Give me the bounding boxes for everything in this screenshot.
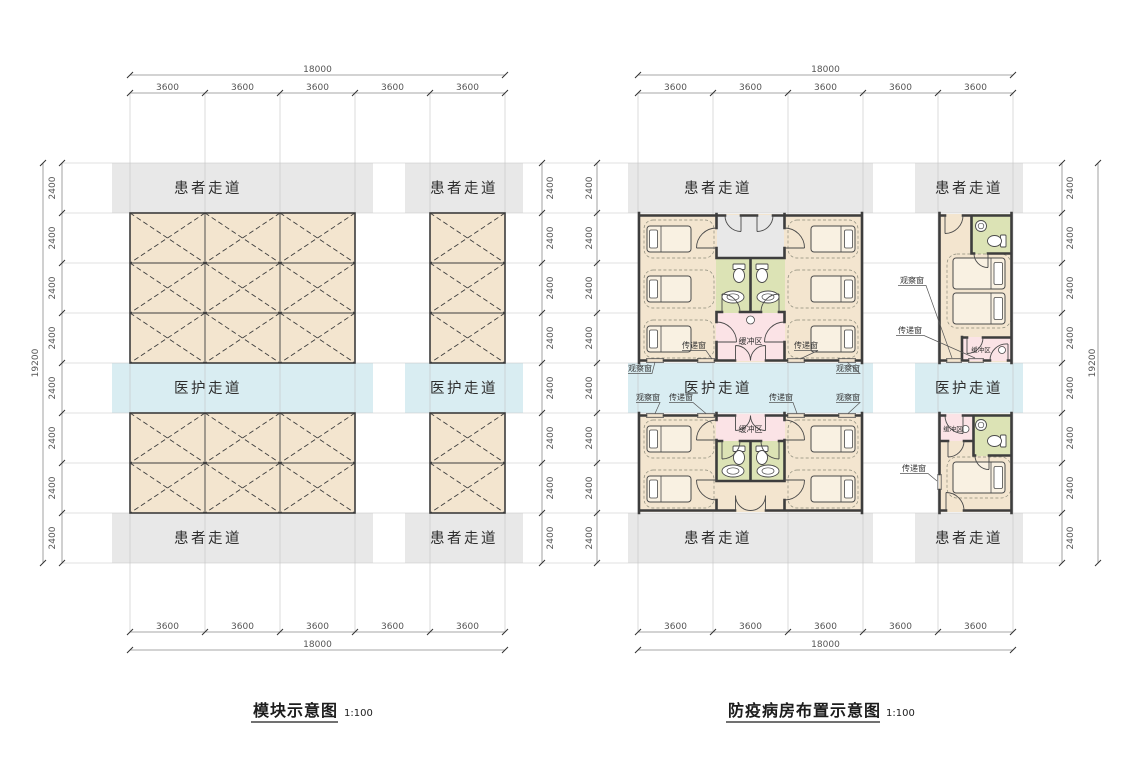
corridor-label: 患者走道 [684, 180, 752, 197]
corridor-label: 患者走道 [684, 530, 752, 547]
dim-label: 2400 [585, 226, 595, 249]
left-plan-module-blocks [130, 213, 505, 513]
dim-label: 2400 [48, 476, 58, 499]
dim-label: 3600 [306, 622, 329, 632]
corridor-label: 患者走道 [935, 180, 1003, 197]
corridor-label: 患者走道 [174, 530, 242, 547]
dim-label: 2400 [1066, 476, 1076, 499]
buffer-zone-label: 缓冲区 [739, 424, 763, 434]
patient-corridor-band [112, 513, 373, 563]
observation-window-label: 观察窗 [836, 363, 860, 373]
dim-label: 2400 [585, 476, 595, 499]
right-plan-title: 防疫病房布置示意图 [728, 701, 881, 720]
entry-vestibule [717, 215, 784, 258]
transfer-window-label: 传递窗 [902, 463, 926, 473]
dim-label: 18000 [811, 65, 840, 75]
corridor-label: 医护走道 [684, 380, 752, 397]
dim-label: 3600 [156, 83, 179, 93]
dim-label: 3600 [231, 622, 254, 632]
dim-label: 3600 [664, 83, 687, 93]
dim-label: 2400 [1066, 226, 1076, 249]
dim-label: 3600 [964, 83, 987, 93]
dim-label: 2400 [546, 326, 556, 349]
corridor-label: 患者走道 [430, 530, 498, 547]
dim-label: 2400 [546, 526, 556, 549]
dim-label: 3600 [156, 622, 179, 632]
transfer-window-label: 传递窗 [669, 392, 693, 402]
dim-label: 3600 [664, 622, 687, 632]
transfer-window-label: 传递窗 [898, 325, 922, 335]
dim-label: 2400 [48, 326, 58, 349]
dim-label: 2400 [546, 426, 556, 449]
dim-label: 2400 [585, 526, 595, 549]
dim-label: 2400 [546, 376, 556, 399]
dim-label: 3600 [889, 83, 912, 93]
corridor-label: 医护走道 [430, 380, 498, 397]
dim-label: 2400 [546, 226, 556, 249]
corridor-label: 医护走道 [935, 380, 1003, 397]
dim-label: 19200 [1088, 348, 1098, 377]
dim-label: 2400 [585, 426, 595, 449]
dim-label: 2400 [48, 526, 58, 549]
observation-window-label: 观察窗 [836, 392, 860, 402]
dim-label: 3600 [889, 622, 912, 632]
floor-plan-drawing: 患者走道 患者走道 医护走道 医护走道 患者走道 患者走道 患者走道 患者走道 … [0, 0, 1144, 775]
dim-label: 2400 [546, 176, 556, 199]
buffer-zone-label: 缓冲区 [739, 336, 763, 346]
dim-label: 3600 [739, 83, 762, 93]
transfer-window-label: 传递窗 [682, 340, 706, 350]
observation-window-label: 观察窗 [900, 275, 924, 285]
dim-label: 2400 [48, 226, 58, 249]
dim-label: 2400 [1066, 526, 1076, 549]
corridor-label: 患者走道 [935, 530, 1003, 547]
dim-label: 3600 [739, 622, 762, 632]
dim-label: 2400 [1066, 176, 1076, 199]
dim-label: 3600 [814, 83, 837, 93]
dim-label: 2400 [585, 176, 595, 199]
dim-label: 2400 [48, 176, 58, 199]
corridor-label: 医护走道 [174, 380, 242, 397]
transfer-window-label: 传递窗 [794, 340, 818, 350]
dim-label: 3600 [231, 83, 254, 93]
staff-corridor-band [112, 363, 373, 413]
left-plan-title: 模块示意图 [253, 701, 338, 720]
observation-window-label: 观察窗 [636, 392, 660, 402]
buffer-zone-label: 缓冲区 [971, 345, 991, 354]
dim-label: 18000 [303, 65, 332, 75]
dim-label: 2400 [1066, 326, 1076, 349]
dim-label: 2400 [585, 376, 595, 399]
dim-label: 2400 [48, 426, 58, 449]
drawing-titles: 模块示意图 1:100 防疫病房布置示意图 1:100 [251, 701, 915, 722]
dim-label: 18000 [811, 640, 840, 650]
dim-label: 3600 [964, 622, 987, 632]
dim-label: 2400 [48, 276, 58, 299]
dim-label: 2400 [48, 376, 58, 399]
left-plan-scale: 1:100 [344, 708, 373, 719]
dim-label: 2400 [1066, 276, 1076, 299]
dim-label: 2400 [585, 326, 595, 349]
dim-label: 2400 [1066, 376, 1076, 399]
dim-label: 19200 [31, 348, 41, 377]
dim-label: 3600 [456, 622, 479, 632]
dim-label: 3600 [381, 622, 404, 632]
dim-label: 18000 [303, 640, 332, 650]
dim-label: 2400 [546, 476, 556, 499]
bathroom [971, 214, 1012, 254]
dim-label: 2400 [1066, 426, 1076, 449]
right-plan-scale: 1:100 [886, 708, 915, 719]
corridor-label: 患者走道 [430, 180, 498, 197]
dim-label: 2400 [585, 276, 595, 299]
dim-label: 3600 [381, 83, 404, 93]
observation-window-label: 观察窗 [628, 363, 652, 373]
transfer-window-label: 传递窗 [769, 392, 793, 402]
drawing-canvas: 患者走道 患者走道 医护走道 医护走道 患者走道 患者走道 患者走道 患者走道 … [0, 0, 1144, 775]
patient-corridor-band [112, 163, 373, 213]
module-block [430, 213, 505, 363]
dim-label: 3600 [456, 83, 479, 93]
corridor-label: 患者走道 [174, 180, 242, 197]
dim-label: 3600 [306, 83, 329, 93]
dim-label: 2400 [546, 276, 556, 299]
dim-label: 3600 [814, 622, 837, 632]
buffer-zone-label: 缓冲区 [943, 424, 963, 433]
